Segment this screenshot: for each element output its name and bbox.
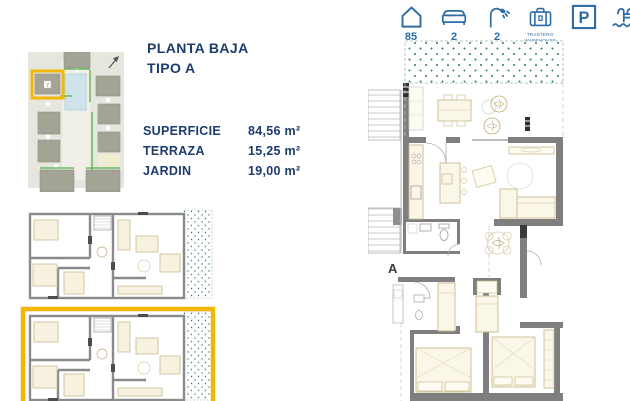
spec-label: SUPERFICIE <box>143 124 248 138</box>
main-floor-plan: A <box>368 40 630 401</box>
title-block: PLANTA BAJA TIPO A <box>147 38 249 78</box>
amenity-parking: P <box>565 3 603 31</box>
parking-letter: P <box>579 9 590 27</box>
amenity-units: 85 <box>393 3 429 43</box>
site-pool <box>65 74 86 110</box>
spec-label: TERRAZA <box>143 144 248 158</box>
amenity-pool <box>608 3 630 31</box>
pool-ladder-icon <box>611 3 630 31</box>
stairwell-upper <box>368 90 400 140</box>
amenity-bathrooms: 2 <box>479 3 515 43</box>
garden-area <box>405 41 563 83</box>
site-plan-map: 7 <box>24 52 128 192</box>
mini-plan-lower <box>18 302 218 401</box>
floorplan-sheet: 7 PLANTA BAJA TIPO A SUPERFICIE 84,56 m²… <box>0 0 630 401</box>
parking-icon: P <box>570 3 598 31</box>
spec-value: 19,00 m² <box>248 164 300 178</box>
shower-icon <box>484 3 511 30</box>
spec-value: 84,56 m² <box>248 124 300 138</box>
area-specs: SUPERFICIE 84,56 m² TERRAZA 15,25 m² JAR… <box>143 121 318 181</box>
site-lawn <box>98 154 120 167</box>
suitcase-icon <box>526 3 555 30</box>
furniture <box>393 87 555 392</box>
spec-row-jardin: JARDIN 19,00 m² <box>143 161 318 181</box>
storage-label-es: TRASTERO <box>524 32 556 38</box>
amenity-bar: 85 2 <box>393 3 630 43</box>
plan-subtitle: TIPO A <box>147 58 249 78</box>
bed-icon <box>439 3 469 30</box>
site-unit-number: 7 <box>46 83 49 89</box>
stairwell-lower <box>368 208 402 253</box>
spec-row-superficie: SUPERFICIE 84,56 m² <box>143 121 318 141</box>
amenity-storage: TRASTERO WAREHOUSE <box>520 3 560 43</box>
spec-row-terraza: TERRAZA 15,25 m² <box>143 141 318 161</box>
plan-title: PLANTA BAJA <box>147 38 249 58</box>
unit-label: A <box>388 261 398 276</box>
amenity-bedrooms: 2 <box>434 3 474 43</box>
house-icon <box>398 3 425 30</box>
mini-plan-upper <box>18 206 218 301</box>
spec-label: JARDIN <box>143 164 248 178</box>
spec-value: 15,25 m² <box>248 144 300 158</box>
